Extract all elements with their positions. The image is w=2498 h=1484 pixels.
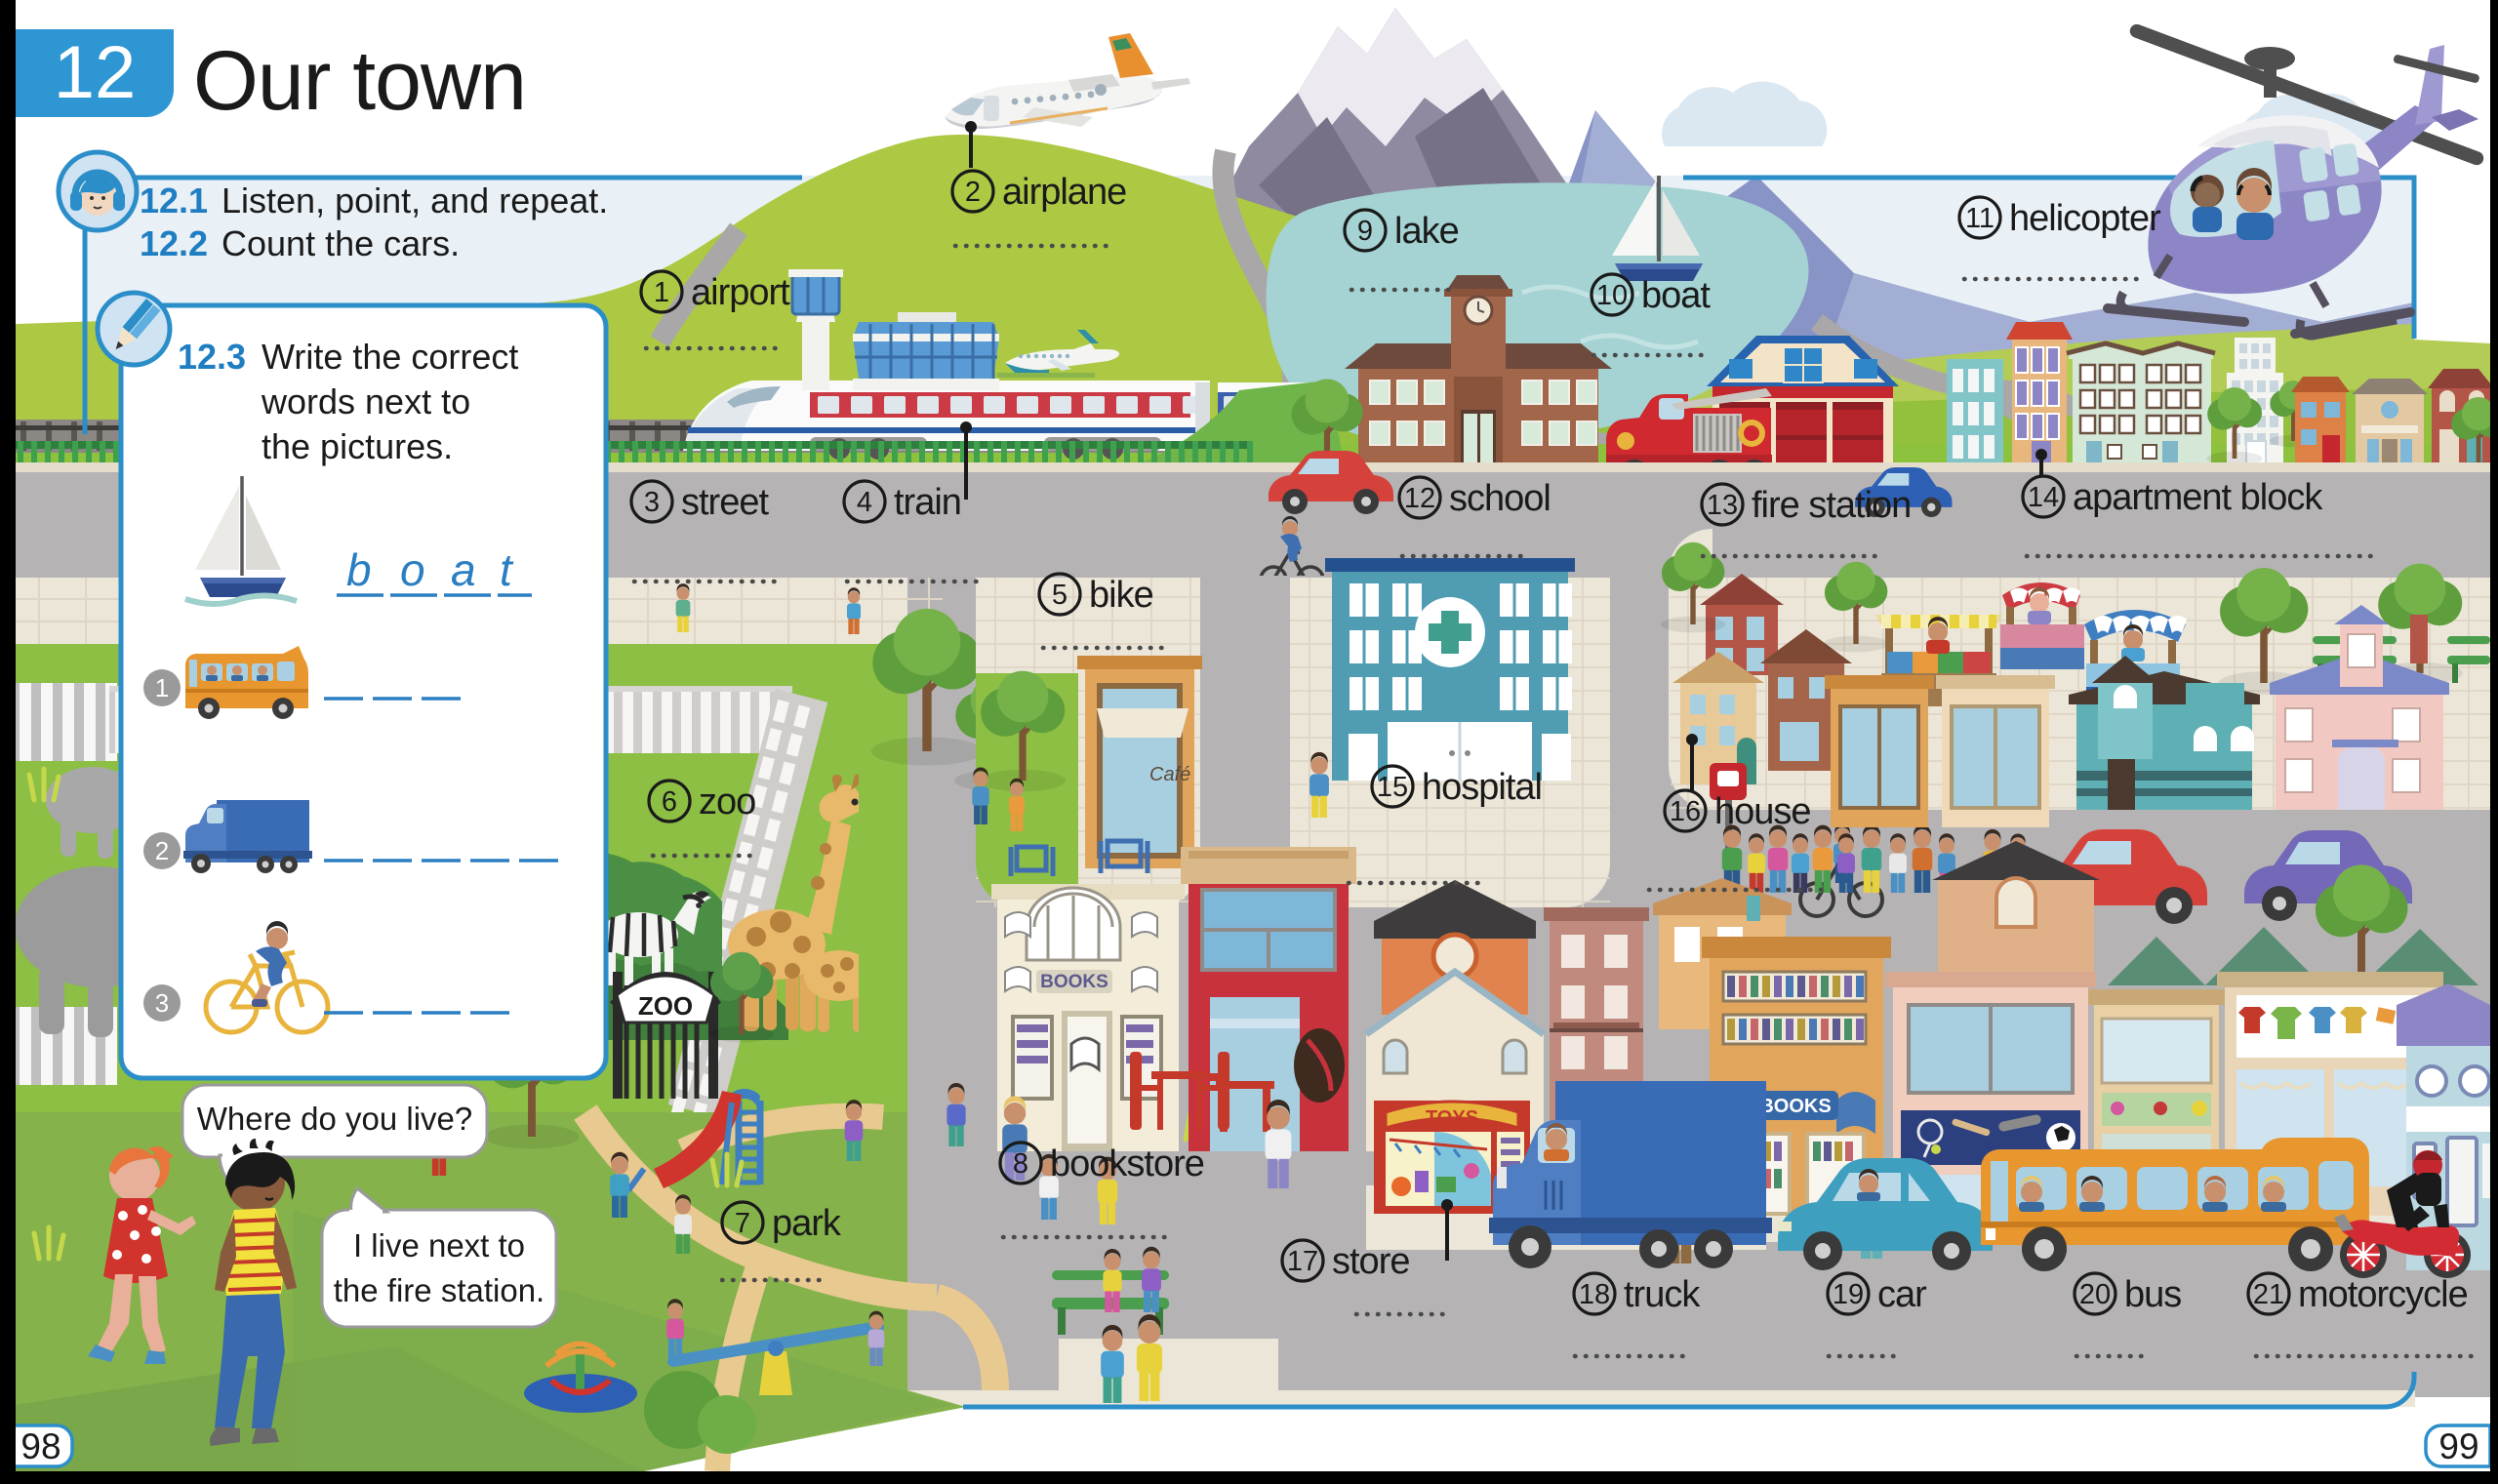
svg-text:bus: bus (2124, 1274, 2181, 1315)
svg-text:3: 3 (644, 487, 660, 518)
svg-text:19: 19 (1833, 1279, 1864, 1310)
svg-text:BOOKS: BOOKS (1759, 1096, 1831, 1117)
svg-text:12.1: 12.1 (140, 180, 208, 221)
svg-text:airport: airport (691, 272, 790, 313)
svg-text:house: house (1714, 791, 1811, 832)
svg-text:18: 18 (1579, 1279, 1610, 1310)
svg-text:o: o (400, 544, 425, 595)
svg-text:99: 99 (2438, 1426, 2478, 1466)
svg-text:12: 12 (1404, 483, 1435, 514)
svg-text:bookstore: bookstore (1050, 1143, 1204, 1184)
svg-text:21: 21 (2253, 1279, 2284, 1310)
svg-text:TOYS: TOYS (1426, 1107, 1478, 1129)
svg-text:10: 10 (1596, 280, 1628, 311)
svg-text:lake: lake (1394, 211, 1459, 252)
svg-text:6: 6 (662, 786, 677, 818)
svg-text:boat: boat (1641, 275, 1711, 316)
svg-text:16: 16 (1670, 796, 1701, 827)
svg-text:13: 13 (1707, 490, 1738, 521)
svg-text:14: 14 (2028, 482, 2059, 513)
svg-text:bike: bike (1089, 575, 1153, 616)
svg-text:store: store (1332, 1241, 1409, 1282)
svg-text:school: school (1449, 478, 1551, 519)
svg-text:Café: Café (1149, 764, 1190, 785)
svg-text:1: 1 (654, 277, 669, 308)
svg-text:8: 8 (1013, 1148, 1028, 1180)
svg-text:1: 1 (155, 673, 169, 702)
svg-text:Our town: Our town (193, 34, 526, 128)
svg-text:b: b (346, 544, 372, 595)
svg-text:4: 4 (857, 487, 872, 518)
svg-text:ZOO: ZOO (638, 991, 693, 1021)
svg-text:park: park (772, 1203, 842, 1244)
svg-text:words next to: words next to (261, 381, 470, 421)
svg-text:11: 11 (1965, 203, 1994, 234)
svg-text:9: 9 (1357, 216, 1373, 247)
svg-text:Write the correct: Write the correct (262, 337, 518, 377)
svg-text:Listen, point, and repeat.: Listen, point, and repeat. (222, 180, 608, 221)
svg-text:12: 12 (54, 31, 137, 114)
svg-text:Count the cars.: Count the cars. (222, 223, 460, 263)
svg-text:I live next to: I live next to (353, 1227, 525, 1263)
svg-text:3: 3 (155, 988, 169, 1018)
svg-text:car: car (1877, 1274, 1927, 1315)
svg-text:12.3: 12.3 (178, 337, 246, 377)
svg-text:zoo: zoo (699, 782, 755, 822)
svg-text:the pictures.: the pictures. (262, 426, 453, 466)
svg-text:17: 17 (1287, 1246, 1318, 1277)
svg-text:train: train (894, 482, 961, 523)
svg-text:a: a (451, 544, 476, 595)
svg-text:hospital: hospital (1422, 767, 1542, 808)
svg-text:truck: truck (1624, 1274, 1701, 1315)
svg-text:2: 2 (155, 836, 169, 865)
svg-text:5: 5 (1052, 580, 1068, 611)
svg-text:20: 20 (2079, 1279, 2111, 1310)
svg-text:12.2: 12.2 (140, 223, 208, 263)
svg-text:the fire station.: the fire station. (334, 1272, 544, 1308)
svg-text:airplane: airplane (1002, 172, 1126, 213)
svg-text:98: 98 (20, 1426, 60, 1466)
svg-text:Where do you live?: Where do you live? (197, 1101, 472, 1137)
svg-text:2: 2 (965, 177, 981, 208)
svg-text:fire station: fire station (1752, 485, 1911, 526)
svg-text:helicopter: helicopter (2009, 198, 2161, 239)
svg-text:7: 7 (735, 1208, 750, 1239)
svg-text:motorcycle: motorcycle (2298, 1274, 2468, 1315)
svg-text:t: t (500, 544, 514, 595)
svg-text:BOOKS: BOOKS (1040, 972, 1108, 992)
svg-text:street: street (681, 482, 769, 523)
svg-text:15: 15 (1377, 772, 1408, 803)
svg-text:apartment block: apartment block (2073, 477, 2323, 518)
